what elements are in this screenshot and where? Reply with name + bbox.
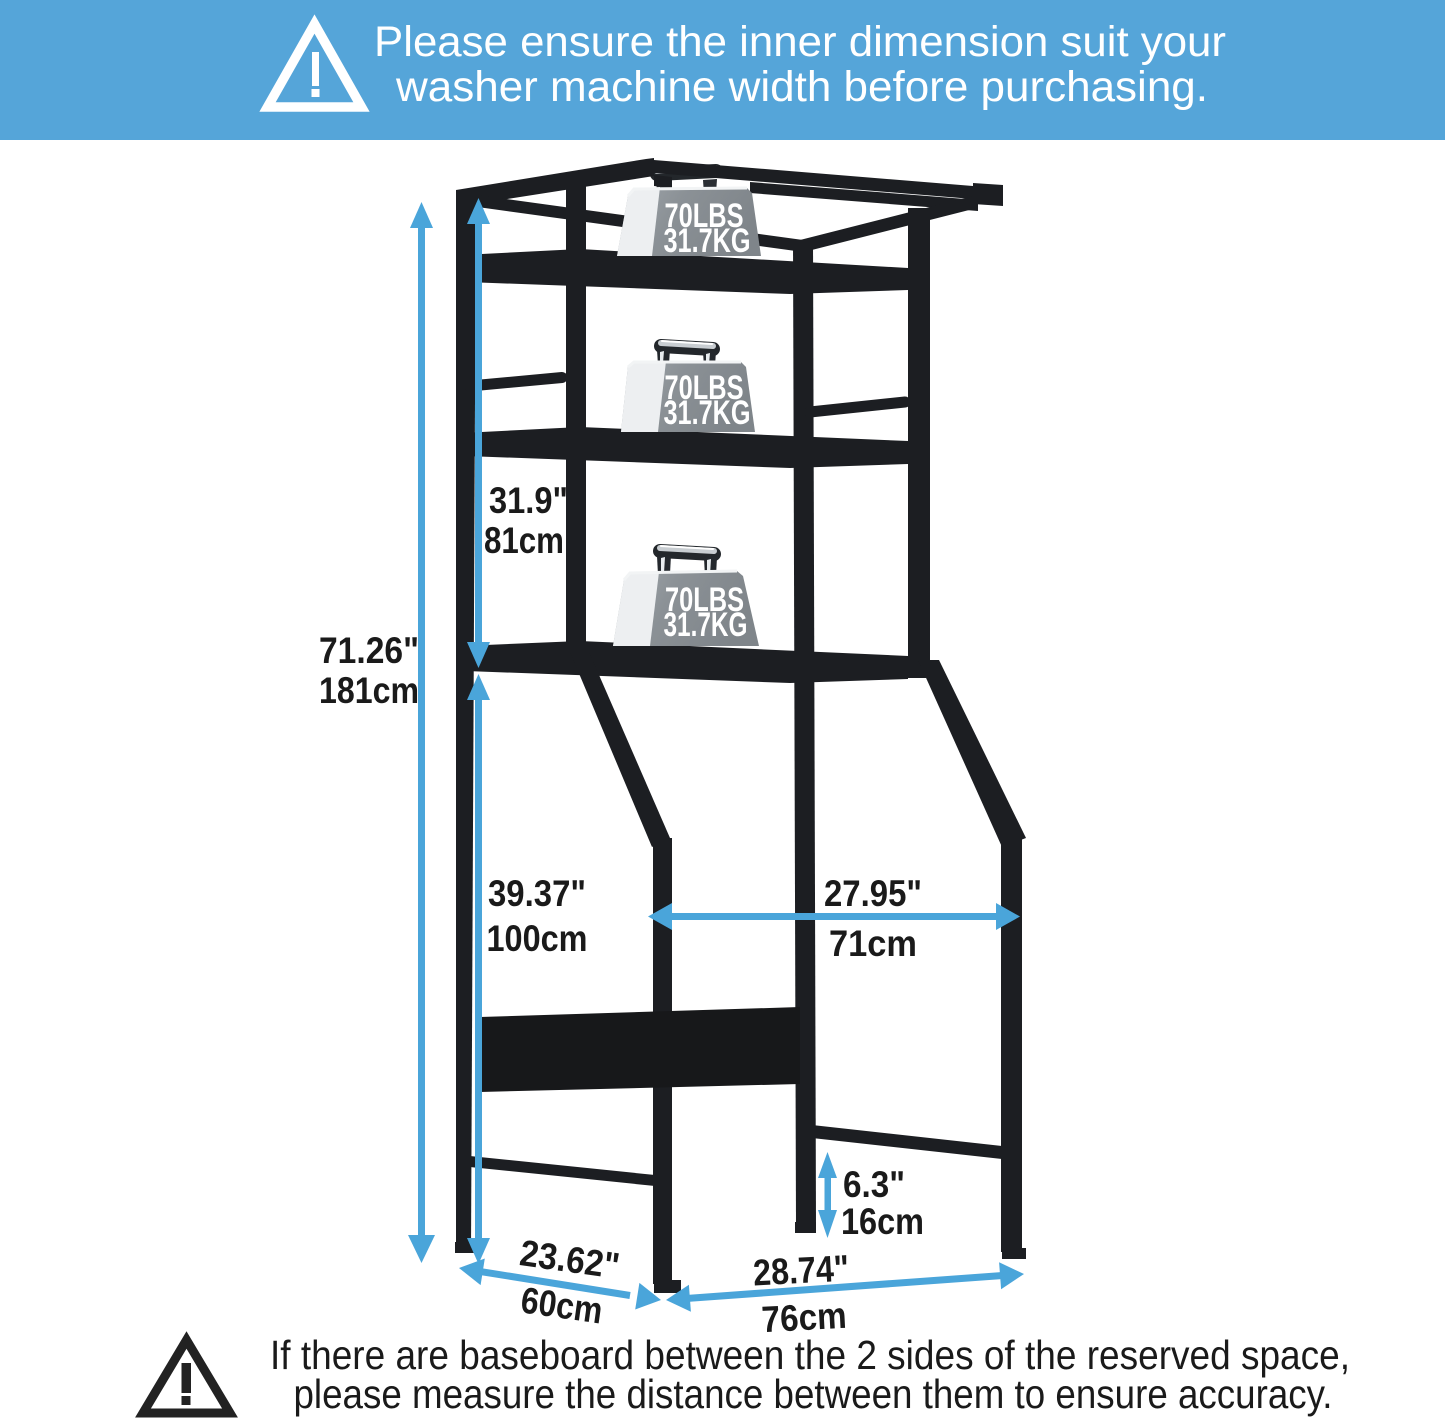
- svg-text:6.3": 6.3": [843, 1164, 905, 1205]
- svg-text:181cm: 181cm: [319, 670, 419, 711]
- svg-text:71cm: 71cm: [829, 923, 917, 964]
- svg-text:31.7KG: 31.7KG: [664, 394, 751, 432]
- svg-text:71.26": 71.26": [319, 630, 419, 671]
- svg-text:31.9": 31.9": [489, 480, 568, 521]
- svg-text:31.7KG: 31.7KG: [664, 606, 748, 644]
- svg-text:please measure the distance be: please measure the distance between them…: [294, 1371, 1333, 1417]
- svg-text:Please ensure the inner dimens: Please ensure the inner dimension suit y…: [374, 18, 1226, 66]
- svg-text:washer machine width before pu: washer machine width before purchasing.: [395, 63, 1208, 111]
- svg-text:31.7KG: 31.7KG: [664, 222, 751, 260]
- svg-text:27.95": 27.95": [824, 873, 922, 914]
- svg-text:16cm: 16cm: [841, 1201, 924, 1242]
- svg-text:39.37": 39.37": [488, 873, 586, 914]
- svg-text:81cm: 81cm: [484, 520, 564, 561]
- svg-text:28.74": 28.74": [752, 1248, 850, 1294]
- svg-text:100cm: 100cm: [487, 918, 588, 959]
